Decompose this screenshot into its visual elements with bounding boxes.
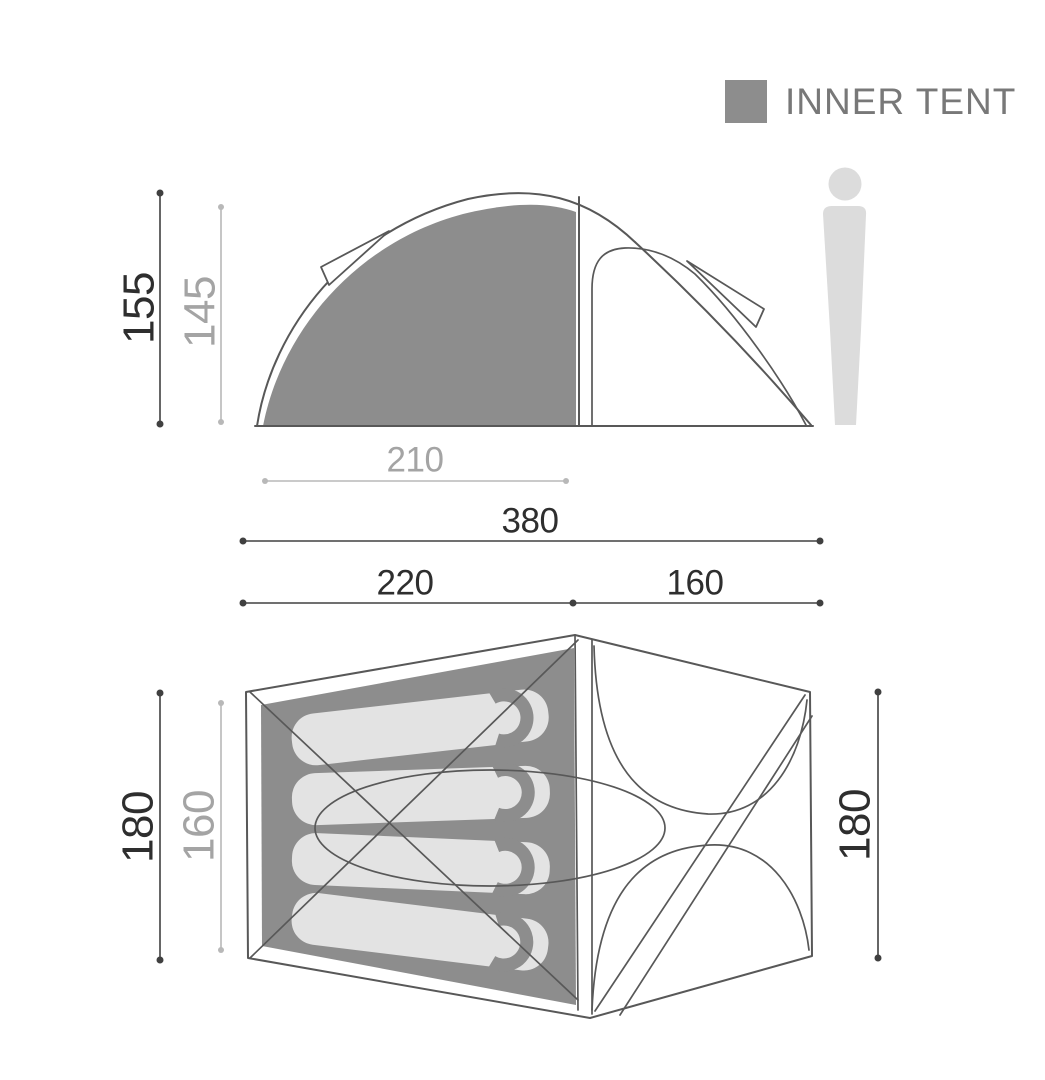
side-view: [255, 168, 866, 427]
dim-left-outer-depth-label: 180: [114, 791, 163, 863]
legend-label: INNER TENT: [785, 81, 1016, 122]
dim-inner-width-label: 210: [387, 441, 444, 480]
floor-strap-line-1: [595, 695, 805, 1011]
dim-inner-section-label: 220: [377, 564, 434, 603]
side-vestibule-door-arch: [592, 248, 806, 426]
tent-spec-canvas: INNER TENT 155: [0, 0, 1045, 1080]
person-head: [829, 168, 862, 201]
dim-right-outer-depth: 180: [831, 689, 882, 962]
floor-vestibule-curve-bottom: [592, 845, 809, 1010]
dim-inner-height-label: 145: [176, 276, 225, 348]
dim-right-outer-depth-label: 180: [831, 789, 880, 861]
dim-inner-depth: 160: [175, 700, 225, 953]
dim-vestibule-label: 160: [667, 564, 724, 603]
side-inner-tent-fill: [263, 205, 576, 426]
dim-inner-depth-label: 160: [175, 790, 224, 862]
floor-plan: [246, 635, 812, 1018]
dim-outer-height: 155: [115, 190, 164, 428]
inner-tent-swatch: [725, 80, 767, 123]
dim-inner-width: 210: [262, 441, 569, 485]
tent-dimensions-diagram: INNER TENT 155: [0, 0, 1045, 1080]
dim-inner-height: 145: [176, 204, 225, 425]
person-figure: [823, 168, 866, 426]
dim-outer-height-label: 155: [115, 272, 164, 344]
dim-total-width: 380: [240, 502, 824, 545]
right-vent-flap: [687, 261, 764, 327]
dim-left-outer-depth: 180: [114, 690, 164, 964]
person-body: [823, 206, 866, 425]
legend: INNER TENT: [725, 80, 1016, 123]
floor-vestibule-curve-top: [594, 646, 807, 814]
floor-strap-line-2: [620, 716, 812, 1015]
dim-section-widths: 220 160: [240, 564, 824, 607]
dim-total-width-label: 380: [502, 502, 559, 541]
